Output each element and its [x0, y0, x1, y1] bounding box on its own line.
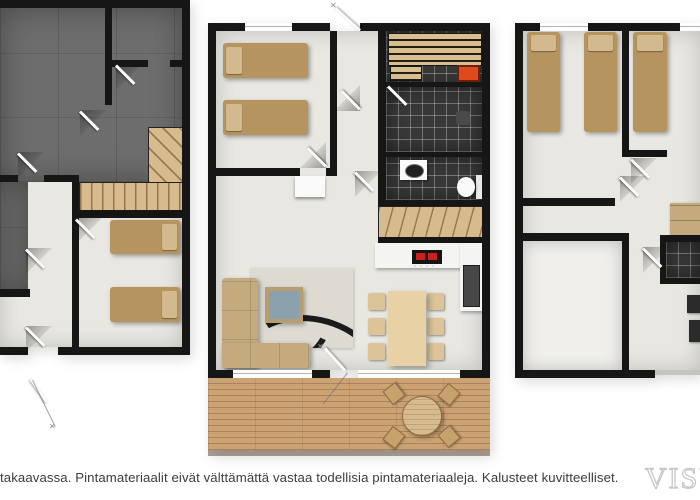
toilet-bowl: [457, 177, 475, 197]
dining-chair: [368, 318, 385, 335]
pillow: [162, 291, 177, 318]
door-icon: [334, 85, 360, 111]
door-icon: [643, 247, 669, 273]
dining-table: [388, 291, 426, 366]
stair-winder: [148, 127, 184, 184]
bed: [110, 220, 180, 254]
door-swing-line: [32, 380, 56, 427]
door-icon: [116, 64, 142, 90]
cooktop-element: [416, 253, 425, 260]
door-handle-icon: ✕: [317, 343, 324, 351]
deck-edge-shadow: [208, 450, 490, 456]
cooktop-knobs: [414, 265, 438, 267]
pillow: [226, 47, 242, 74]
wall: [312, 370, 330, 378]
door-icon: [76, 218, 102, 244]
coffee-table: [265, 287, 303, 323]
pillow: [637, 35, 663, 51]
wall: [0, 0, 190, 8]
pillow: [226, 104, 242, 131]
dining-chair: [368, 343, 385, 360]
large-room-floor: [523, 241, 622, 370]
wall: [182, 0, 190, 355]
wall: [44, 175, 79, 182]
bed: [223, 100, 308, 135]
wall: [170, 60, 182, 67]
wall: [0, 289, 30, 297]
wall: [292, 23, 330, 31]
watermark: Visu: [645, 462, 700, 496]
wall: [460, 370, 490, 378]
deck-round-table: [402, 396, 442, 436]
pillow: [588, 35, 613, 51]
wall: [523, 198, 615, 206]
concrete-storage-floor: [0, 182, 28, 292]
wardrobe: [670, 203, 700, 235]
floorplan-main: ✕: [208, 23, 490, 456]
cooktop: [412, 250, 442, 264]
door-icon: [18, 152, 44, 178]
floorplan-upper: [515, 23, 700, 378]
door-icon: [388, 85, 414, 111]
pillow: [531, 35, 556, 51]
bathroom-fixture: [689, 320, 700, 342]
wall: [622, 241, 629, 370]
door-handle-icon: ✕: [330, 2, 337, 10]
wall: [482, 23, 490, 378]
wall: [58, 347, 190, 355]
dining-chair: [427, 293, 444, 310]
glass-door: [233, 370, 312, 378]
bed: [584, 32, 617, 132]
wall: [515, 23, 523, 378]
floor-plan-image: ✕: [0, 0, 700, 500]
wall: [75, 210, 182, 218]
wall: [216, 168, 300, 176]
wall: [515, 370, 655, 378]
door-icon: [26, 248, 52, 274]
wall: [622, 31, 629, 157]
floor-extension: [655, 370, 700, 375]
door-icon: [26, 326, 52, 352]
wall: [326, 168, 337, 176]
wall: [0, 175, 18, 182]
sauna-stove: [457, 65, 480, 82]
oven-appliance: [463, 265, 480, 307]
door-icon: [300, 142, 326, 168]
dining-chair: [427, 318, 444, 335]
door-icon: [631, 158, 657, 184]
door-icon: [80, 110, 106, 136]
wardrobe-cabinet: [295, 176, 325, 197]
wall: [72, 182, 79, 347]
bathroom-fixture: [687, 295, 700, 313]
staircase: [378, 206, 484, 239]
shower-drain: [456, 111, 470, 125]
wall: [208, 23, 216, 378]
window: [245, 23, 292, 31]
window: [540, 23, 588, 31]
wall: [588, 23, 680, 31]
sink-basin: [405, 164, 424, 178]
door-handle-icon: ✕: [49, 423, 56, 431]
pillow: [162, 224, 177, 250]
bed: [527, 32, 560, 132]
wall: [660, 235, 700, 242]
wall: [0, 347, 28, 355]
dining-chair: [427, 343, 444, 360]
sauna-bench: [388, 33, 482, 66]
window: [680, 23, 700, 31]
sink: [400, 160, 427, 180]
floorplan-basement: [0, 0, 190, 355]
wall: [523, 233, 629, 241]
glass-door: [358, 370, 460, 378]
bed: [633, 32, 667, 132]
dining-chair: [368, 293, 385, 310]
door-icon: [355, 171, 381, 197]
wall: [660, 278, 700, 284]
cooktop-element: [428, 253, 437, 260]
caption-text: takaavassa. Pintamateriaalit eivät vältt…: [0, 470, 619, 485]
wall: [629, 150, 667, 157]
sofa-seat: [222, 343, 310, 368]
wall: [360, 23, 490, 31]
bed: [223, 43, 308, 78]
bathroom-floor: [666, 242, 700, 278]
wall: [208, 370, 233, 378]
stair-flight: [79, 182, 184, 212]
sauna-bench-step: [390, 66, 422, 81]
wall: [105, 8, 112, 105]
bed: [110, 287, 180, 322]
